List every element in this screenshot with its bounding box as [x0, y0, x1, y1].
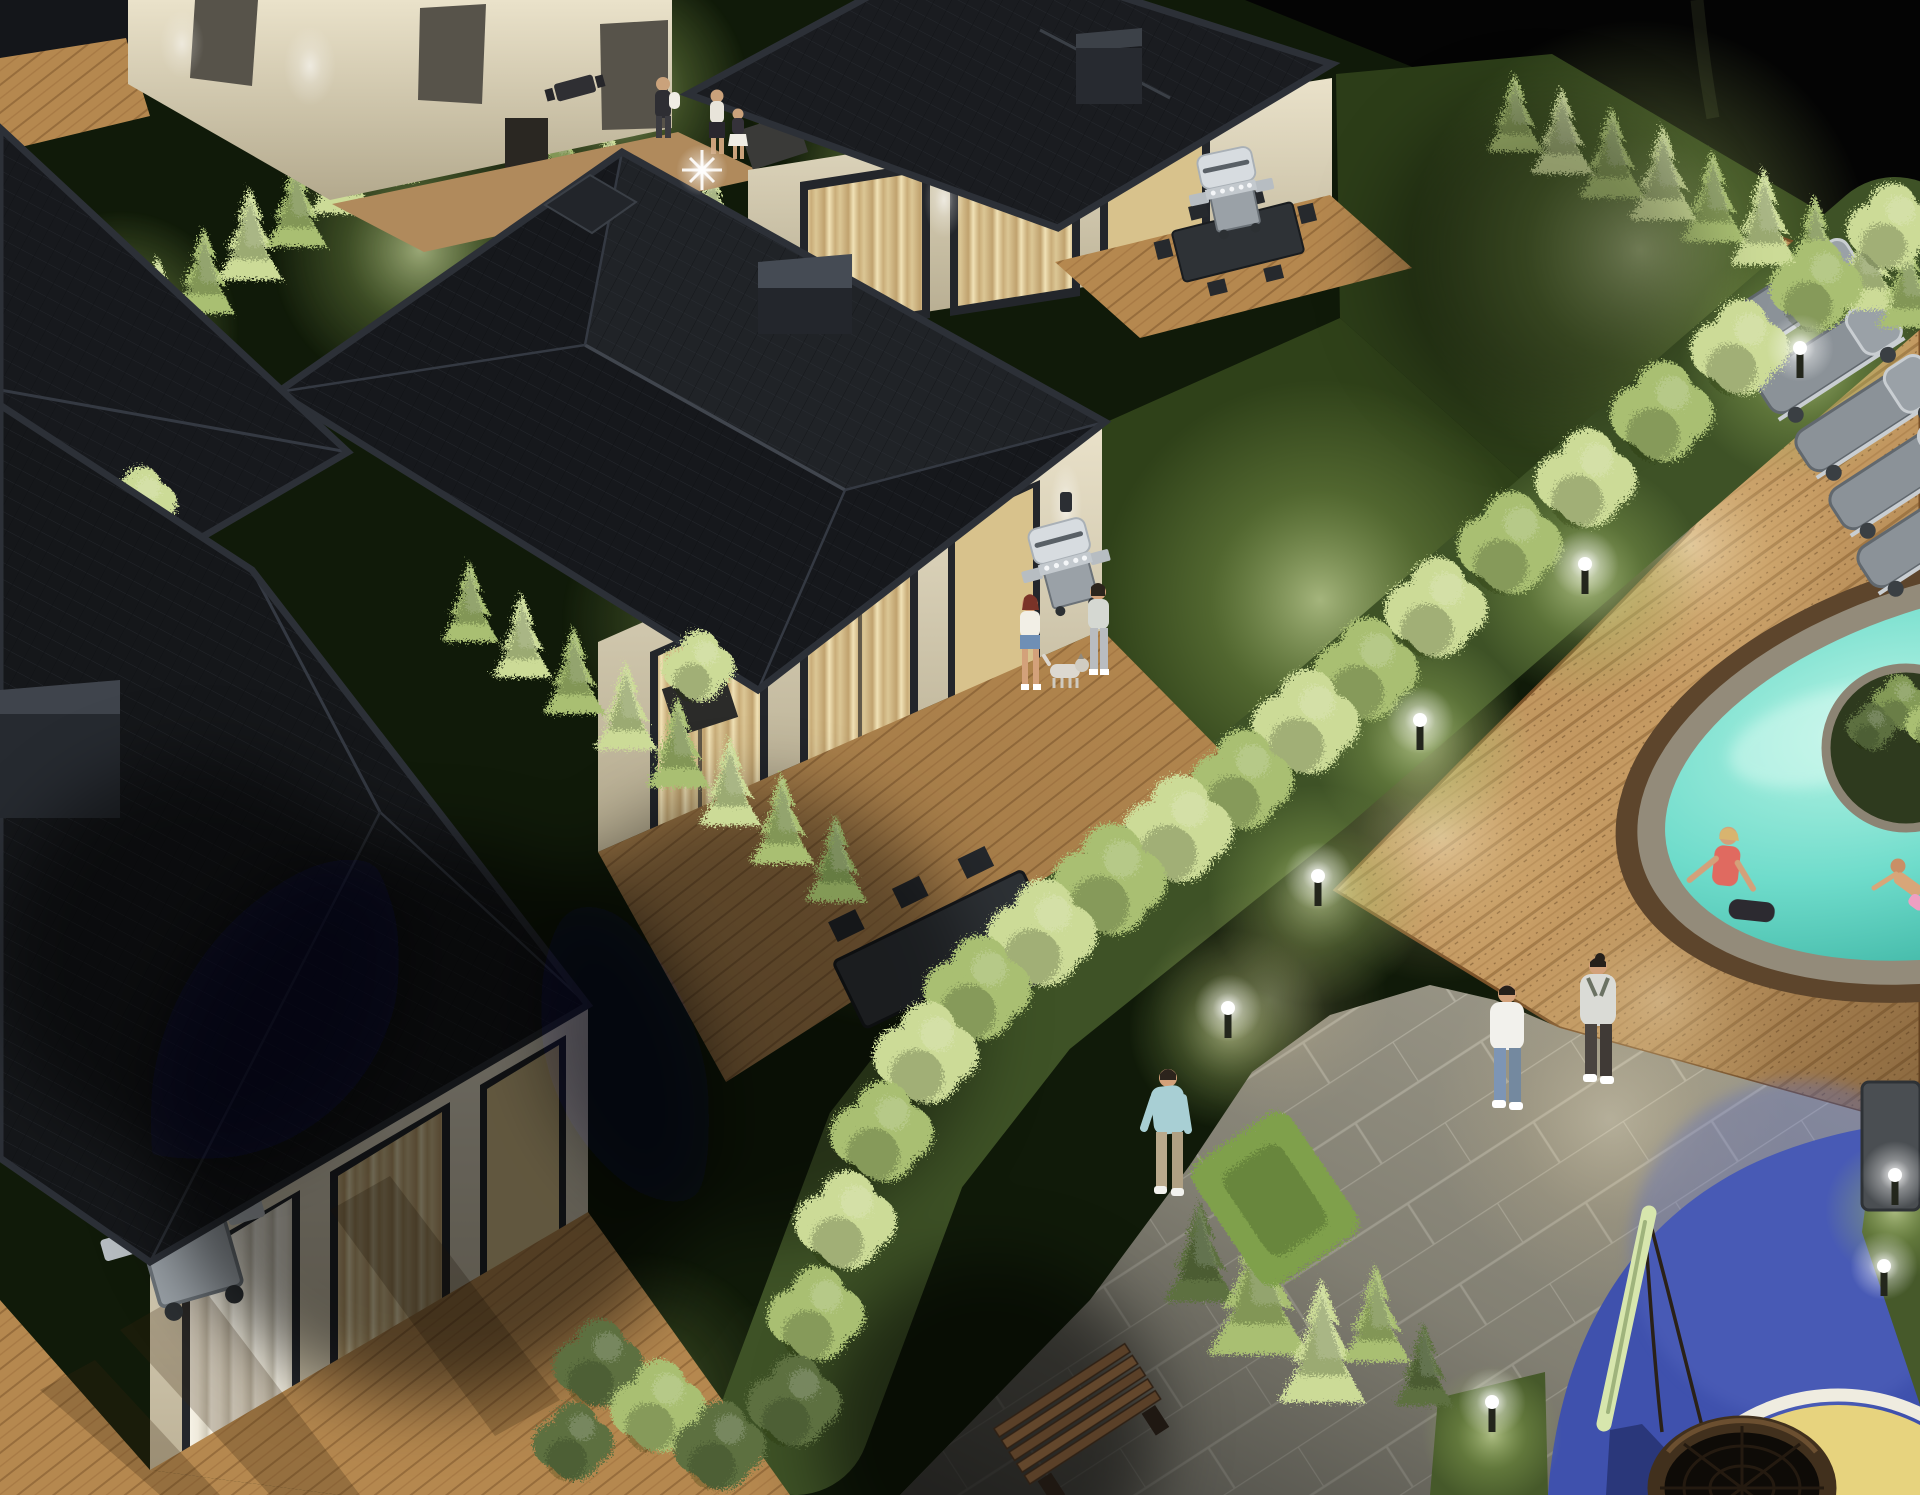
bollard-light — [1386, 686, 1454, 754]
bollard-light — [1850, 1232, 1918, 1300]
bollard-light — [1766, 314, 1834, 382]
chimney — [1076, 28, 1142, 104]
render-viewport — [0, 0, 1920, 1495]
bollard-light — [1284, 842, 1352, 910]
bollard-light — [1551, 530, 1619, 598]
chimney — [758, 254, 852, 334]
garden-sparkle-light — [676, 144, 728, 196]
bollard-light — [1194, 974, 1262, 1042]
night-render-scene — [0, 0, 1920, 1495]
bollard-light — [1458, 1368, 1526, 1436]
person-child-held — [669, 92, 680, 109]
